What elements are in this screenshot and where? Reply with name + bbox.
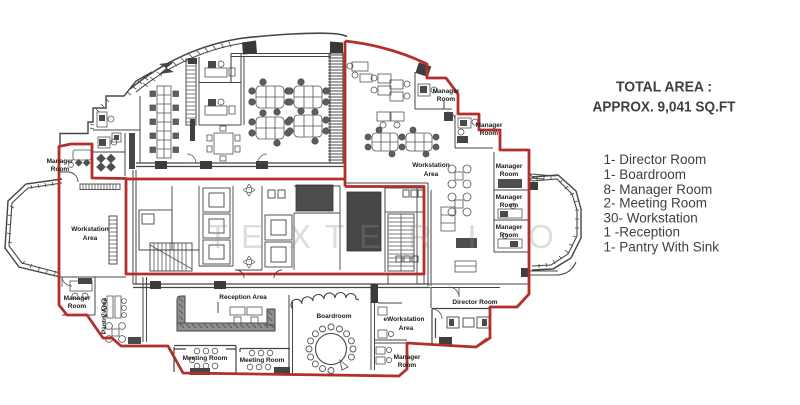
svg-text:Room: Room	[480, 130, 499, 137]
svg-text:2- Meeting Room: 2- Meeting Room	[604, 196, 708, 211]
svg-text:30- Workstation: 30- Workstation	[604, 211, 698, 226]
svg-text:eWorkstation: eWorkstation	[383, 316, 424, 323]
svg-text:X: X	[289, 218, 311, 255]
svg-text:Manager: Manager	[496, 194, 523, 201]
svg-text:1- Director Room: 1- Director Room	[604, 152, 707, 167]
svg-text:Workstation: Workstation	[71, 226, 108, 233]
svg-text:I: I	[467, 218, 476, 255]
svg-text:Boardroom: Boardroom	[316, 313, 351, 320]
svg-text:Area: Area	[83, 235, 98, 242]
svg-text:Room: Room	[437, 96, 456, 103]
svg-text:Director Room: Director Room	[452, 299, 497, 306]
svg-text:TOTAL AREA :: TOTAL AREA :	[616, 79, 712, 96]
svg-text:APPROX. 9,041 SQ.FT: APPROX. 9,041 SQ.FT	[593, 99, 736, 116]
svg-text:O: O	[528, 218, 554, 255]
svg-text:Room: Room	[500, 232, 519, 239]
svg-text:E: E	[359, 218, 381, 255]
svg-text:1- Pantry With Sink: 1- Pantry With Sink	[604, 240, 720, 255]
svg-text:Manager: Manager	[47, 158, 74, 165]
svg-text:Workstation: Workstation	[412, 162, 449, 169]
svg-text:Meeting Room: Meeting Room	[240, 357, 285, 364]
svg-text:Manager: Manager	[496, 224, 523, 231]
svg-text:T: T	[325, 218, 345, 255]
svg-text:Manager: Manager	[64, 295, 91, 302]
svg-text:T: T	[208, 218, 228, 255]
svg-text:Room: Room	[500, 171, 519, 178]
svg-text:1- Boardroom: 1- Boardroom	[604, 167, 687, 182]
svg-text:Manager: Manager	[496, 163, 523, 170]
svg-text:Room: Room	[398, 362, 417, 369]
svg-text:Pantry Area: Pantry Area	[101, 297, 108, 334]
svg-text:Manager: Manager	[476, 122, 503, 129]
svg-text:Area: Area	[399, 325, 414, 332]
svg-text:Room: Room	[68, 303, 87, 310]
svg-text:Room: Room	[51, 166, 70, 173]
svg-text:Manager: Manager	[394, 354, 421, 361]
svg-text:1 -Reception: 1 -Reception	[604, 225, 681, 240]
svg-text:Manager: Manager	[433, 88, 460, 95]
svg-text:E: E	[241, 218, 263, 255]
svg-text:Area: Area	[424, 171, 439, 178]
svg-text:Meeting Room: Meeting Room	[183, 355, 228, 362]
svg-text:R: R	[408, 218, 432, 255]
svg-text:Room: Room	[500, 202, 519, 209]
svg-text:Reception Area: Reception Area	[219, 294, 267, 301]
